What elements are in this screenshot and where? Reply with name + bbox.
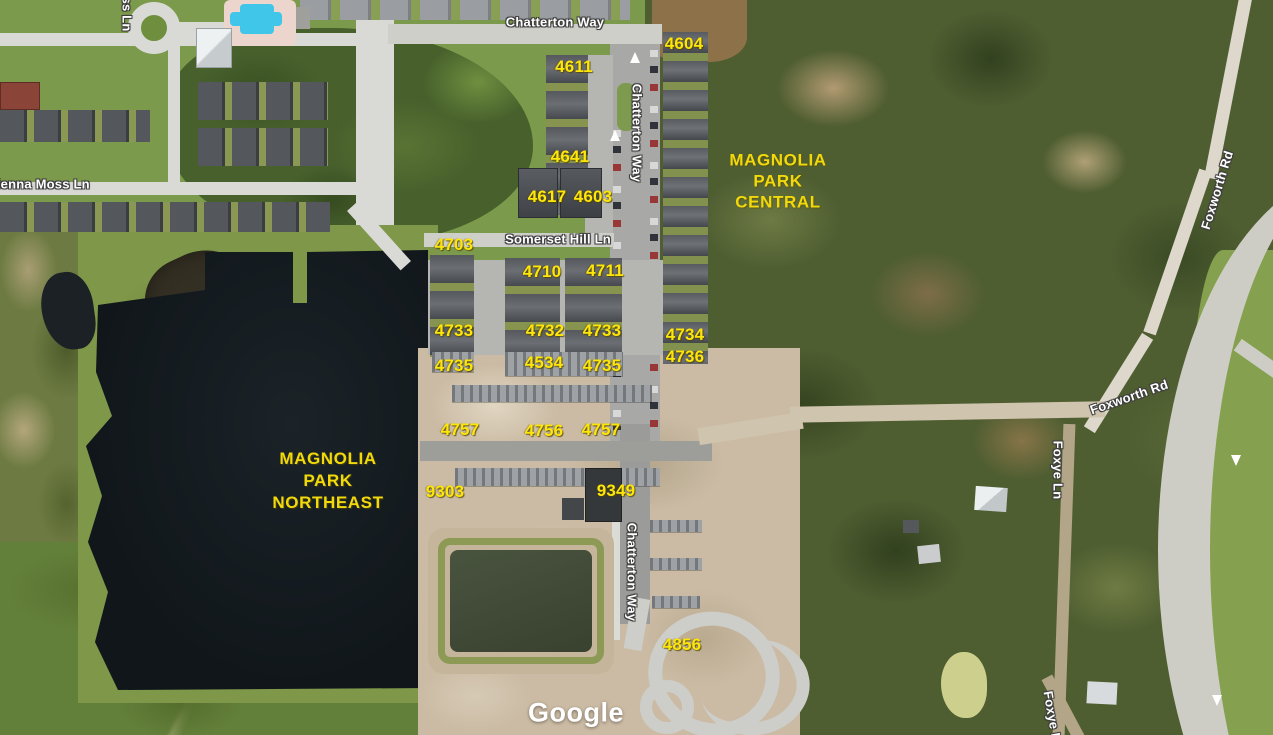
road-arrow-up-1 xyxy=(630,52,640,63)
garage-strip-5 xyxy=(652,596,700,608)
pond-yellow-clearing xyxy=(941,652,987,718)
street-label-chatterton-mid: Chatterton Way xyxy=(630,84,645,182)
garage-strip-4 xyxy=(650,558,702,570)
address-label-4711: 4711 xyxy=(586,261,624,281)
house-east-2 xyxy=(917,544,941,564)
street-label-foxye: Foxye Ln xyxy=(1051,441,1066,500)
building-9349-annex xyxy=(562,498,584,520)
address-label-4734: 4734 xyxy=(666,325,705,345)
address-label-4641: 4641 xyxy=(551,147,590,167)
address-label-4703: 4703 xyxy=(435,235,474,255)
townhomes-somerset-west xyxy=(430,255,474,357)
area-label-magnolia-park-central: MAGNOLIA PARK CENTRAL xyxy=(729,150,826,213)
house-east-3 xyxy=(1086,681,1117,705)
address-label-4604: 4604 xyxy=(665,34,704,54)
garage-strip-3 xyxy=(650,520,702,532)
house-block-b1 xyxy=(198,82,328,120)
access-road-gray xyxy=(420,441,712,461)
address-label-4757-w: 4757 xyxy=(441,420,480,440)
house-red-roof xyxy=(0,82,40,110)
pool-water-wing xyxy=(230,12,282,26)
street-label-somerset: Somerset Hill Ln xyxy=(505,232,611,247)
area-label-magnolia-park-northeast: MAGNOLIA PARK NORTHEAST xyxy=(272,448,383,514)
address-label-4732: 4732 xyxy=(526,321,565,341)
street-label-chatterton-top: Chatterton Way xyxy=(506,15,604,30)
address-label-9349: 9349 xyxy=(597,481,636,501)
house-row-c xyxy=(0,202,330,232)
street-label-moss-fragment: ss Ln xyxy=(120,0,135,31)
clubhouse xyxy=(196,28,232,68)
house-east-1 xyxy=(974,486,1008,512)
highway-arrow-1 xyxy=(1231,455,1241,466)
house-block-b2 xyxy=(198,128,328,166)
street-label-sienna-moss: Sienna Moss Ln xyxy=(0,177,90,192)
highway-arrow-2 xyxy=(1212,695,1222,706)
address-label-4735-e: 4735 xyxy=(583,356,622,376)
area-northeast-line3: NORTHEAST xyxy=(272,492,383,514)
garage-strip-1 xyxy=(452,385,652,402)
address-label-4856: 4856 xyxy=(663,635,702,655)
townhomes-east-column xyxy=(663,32,708,364)
cul-de-sac-ring xyxy=(640,680,694,734)
parked-cars-east xyxy=(650,50,658,430)
area-northeast-line2: PARK xyxy=(272,470,383,492)
address-label-9303: 9303 xyxy=(426,482,465,502)
house-row-a xyxy=(0,110,150,142)
address-label-4757-e: 4757 xyxy=(582,420,621,440)
satellite-map[interactable]: Chatterton Way Chatterton Way Chatterton… xyxy=(0,0,1273,735)
retention-pond-water xyxy=(450,550,592,652)
address-label-4617: 4617 xyxy=(528,187,567,207)
street-label-chatterton-bottom: Chatterton Way xyxy=(625,523,640,621)
address-label-4733-e: 4733 xyxy=(583,321,622,341)
address-label-4534: 4534 xyxy=(525,353,564,373)
shed-east xyxy=(903,520,919,533)
area-central-line3: CENTRAL xyxy=(729,192,826,213)
address-label-4611: 4611 xyxy=(555,57,593,77)
google-logo: Google xyxy=(528,698,624,729)
area-northeast-line1: MAGNOLIA xyxy=(272,448,383,470)
roundabout xyxy=(128,2,180,54)
address-label-4756: 4756 xyxy=(525,421,564,441)
area-central-line1: MAGNOLIA xyxy=(729,150,826,171)
road-west-1 xyxy=(0,33,360,46)
address-label-4736: 4736 xyxy=(666,347,705,367)
address-label-4710: 4710 xyxy=(523,262,562,282)
address-label-4603: 4603 xyxy=(574,187,613,207)
road-arrow-up-2 xyxy=(610,130,620,141)
address-label-4733-w: 4733 xyxy=(435,321,474,341)
area-central-line2: PARK xyxy=(729,171,826,192)
road-west-2 xyxy=(168,33,180,188)
address-label-4735-w: 4735 xyxy=(435,356,474,376)
